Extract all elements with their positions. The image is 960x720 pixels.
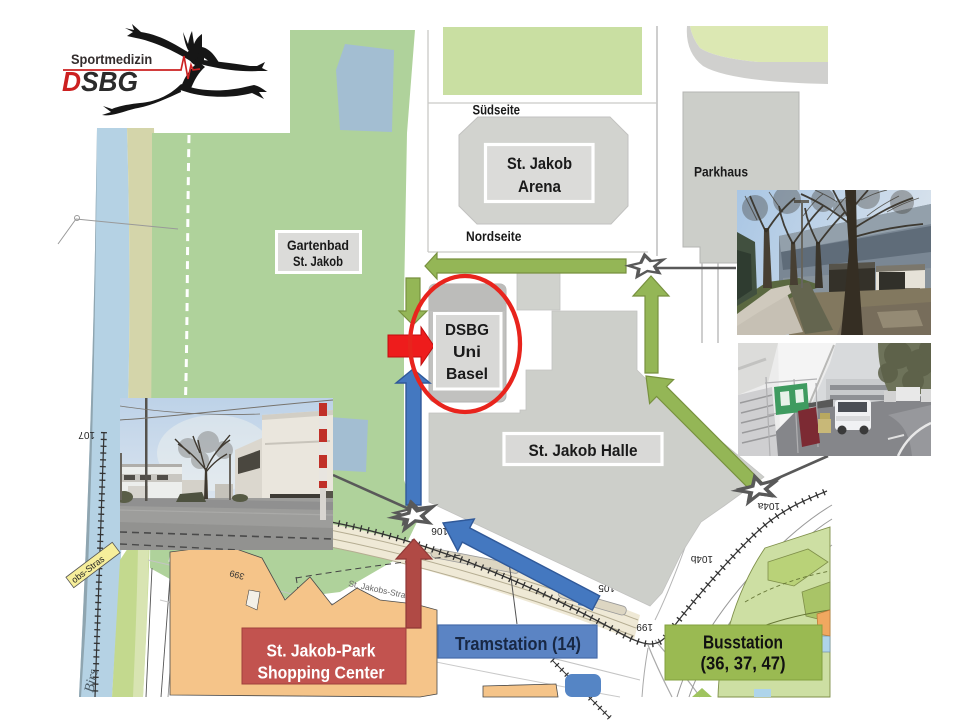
svg-text:(36, 37, 47): (36, 37, 47) [701,652,786,673]
svg-text:St. Jakob: St. Jakob [293,253,343,269]
svg-text:104b: 104b [690,553,713,564]
svg-text:St. Jakob-Park: St. Jakob-Park [267,641,376,661]
svg-text:Arena: Arena [518,178,562,196]
svg-text:DSBG: DSBG [445,322,489,339]
svg-text:Nordseite: Nordseite [466,229,522,244]
svg-text:DSBG: DSBG [62,65,138,97]
svg-text:Busstation: Busstation [703,631,783,652]
svg-text:199: 199 [636,621,653,632]
svg-text:St. Jakob Halle: St. Jakob Halle [529,442,638,460]
svg-text:104a: 104a [757,500,780,511]
svg-text:Südseite: Südseite [473,103,521,118]
svg-text:Tramstation (14): Tramstation (14) [455,634,581,654]
svg-text:Gartenbad: Gartenbad [287,237,349,253]
svg-text:Uni: Uni [453,344,481,361]
svg-text:Shopping Center: Shopping Center [258,663,385,683]
svg-text:107: 107 [78,429,95,440]
svg-text:Basel: Basel [446,366,488,383]
svg-text:Parkhaus: Parkhaus [694,164,748,180]
svg-text:St. Jakob: St. Jakob [507,155,572,173]
